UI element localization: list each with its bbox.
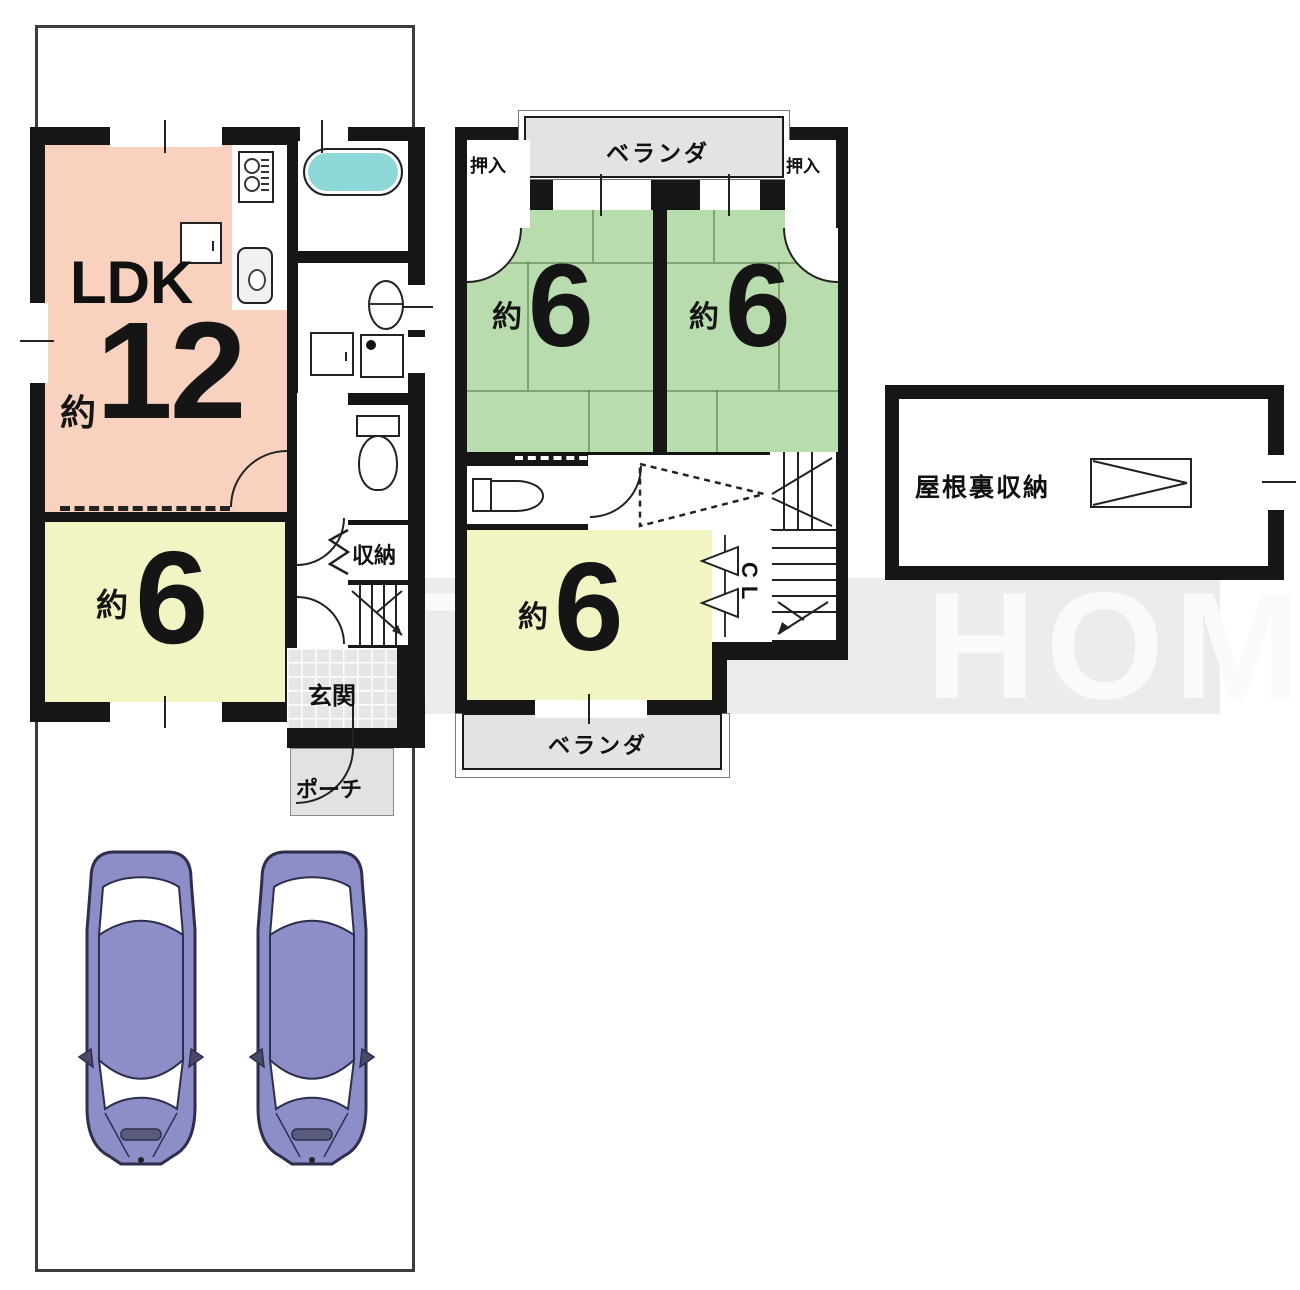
window-f2-north-right-tick	[728, 174, 730, 216]
window-f1-bath	[300, 127, 348, 147]
sliding-opening-left	[515, 456, 600, 460]
south-balcony-label: ベランダ	[548, 728, 648, 760]
floor2-south-approx: 約	[518, 592, 548, 636]
window-f2-north-right	[700, 180, 760, 210]
car-icon	[77, 845, 205, 1170]
tatami-right-approx: 約	[689, 292, 719, 336]
floorplan-canvas: AFTER HOME LDK 約 12 約 6 収納	[0, 0, 1300, 1290]
toilet2-bowl-icon	[490, 480, 544, 512]
car-icon	[248, 845, 376, 1170]
toilet1-tank-icon	[356, 415, 400, 437]
oshiire-right-label: 押入	[786, 152, 820, 177]
attic-hatch-icon	[1090, 458, 1192, 508]
porch-label: ポーチ	[296, 772, 362, 804]
toilet1-bowl-icon	[358, 435, 398, 491]
window-f1-east-2	[408, 337, 425, 373]
ldk-approx-label: 約	[60, 384, 96, 436]
window-f2-north-left	[553, 180, 651, 210]
ldk-area-number: 12	[96, 292, 244, 451]
tatami-right-area-number: 6	[725, 238, 788, 374]
window-f2-south	[535, 700, 647, 718]
attic-window-tick	[1262, 481, 1296, 483]
tatami-line	[716, 390, 718, 452]
floor1-south-approx: 約	[96, 580, 128, 626]
bifold-door-icon	[328, 528, 350, 576]
floor2-stairs	[770, 452, 836, 640]
tatami-line	[713, 210, 715, 262]
tatami-right-room-top	[667, 210, 785, 228]
floor1-stairs	[348, 585, 408, 645]
closet-cl-label: CL	[736, 562, 762, 607]
window-f1-north-tick	[164, 120, 166, 153]
stove-icon	[238, 151, 274, 203]
tatami-line	[667, 390, 838, 392]
attic-ladder-hatch-icon	[638, 460, 770, 530]
washing-machine-icon	[310, 332, 354, 376]
window-f1-north	[110, 127, 222, 147]
watermark-word-right: HOME	[926, 578, 1300, 714]
window-f1-south	[110, 702, 222, 722]
cl-door-markers	[698, 545, 740, 625]
toilet2-tank-icon	[472, 478, 492, 512]
bathtub-icon	[303, 148, 403, 196]
floor2-south-area-number: 6	[554, 536, 621, 679]
window-f2-south-tick	[588, 694, 590, 724]
floor1-south-area-number: 6	[135, 522, 205, 673]
window-f1-west-tick	[20, 340, 54, 342]
window-f1-bath-tick	[321, 120, 323, 153]
north-balcony-label: ベランダ	[606, 134, 710, 168]
oshiire-left-label: 押入	[470, 152, 506, 178]
tatami-left-area-number: 6	[528, 238, 591, 374]
entrance-label: 玄関	[308, 676, 356, 711]
floor1-storage-label: 収納	[352, 538, 396, 570]
window-f1-south-tick	[164, 696, 166, 728]
ldk-partition-dashed	[60, 506, 230, 511]
laundry-pan-icon	[360, 334, 404, 378]
window-f1-west	[30, 303, 48, 383]
tatami-line	[592, 210, 594, 262]
window-f2-north-left-tick	[600, 174, 602, 216]
stairs2-icon	[770, 452, 836, 640]
washbasin-icon	[368, 280, 404, 330]
window-f1-east-1-tick	[403, 306, 433, 308]
tatami-left-approx: 約	[492, 292, 522, 336]
tatami-line	[588, 390, 590, 452]
attic-label: 屋根裏収納	[915, 468, 1050, 504]
tatami-line	[467, 390, 653, 392]
stairs1-icon	[348, 585, 408, 645]
